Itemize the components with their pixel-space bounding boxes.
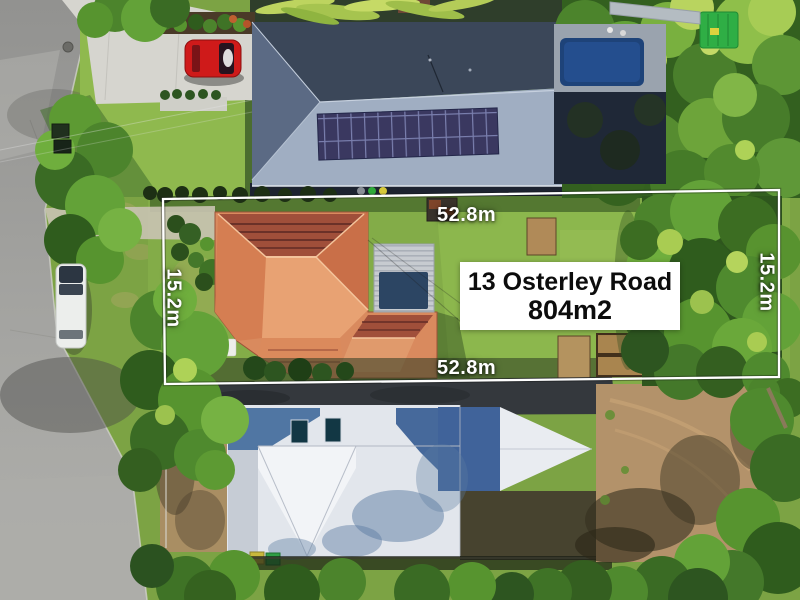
neighbor-house-roof [250, 22, 565, 198]
red-car [184, 40, 244, 86]
carport [374, 244, 434, 312]
dimension-label-left: 15.2m [162, 268, 185, 327]
solar-panel-array [317, 108, 498, 160]
skylight [291, 420, 308, 443]
aerial-photo-canvas [0, 0, 800, 600]
manhole-cover [63, 42, 73, 52]
dimension-label-top: 52.8m [437, 204, 496, 227]
dimension-label-right: 15.2m [755, 252, 778, 311]
windshield [59, 284, 83, 295]
play-box [700, 12, 738, 48]
swimming-pool-area [554, 24, 666, 184]
dimension-label-bottom: 52.8m [437, 357, 496, 380]
address-line-1: 13 Osterley Road [468, 268, 672, 296]
tree-shadow-on-road [0, 357, 140, 433]
blue-tarp [379, 272, 428, 309]
address-line-2: 804m2 [528, 296, 612, 324]
aerial-photo: 52.8m 52.8m 15.2m 15.2m 13 Osterley Road… [0, 0, 800, 600]
skylight [325, 418, 341, 442]
address-box: 13 Osterley Road 804m2 [460, 262, 680, 330]
